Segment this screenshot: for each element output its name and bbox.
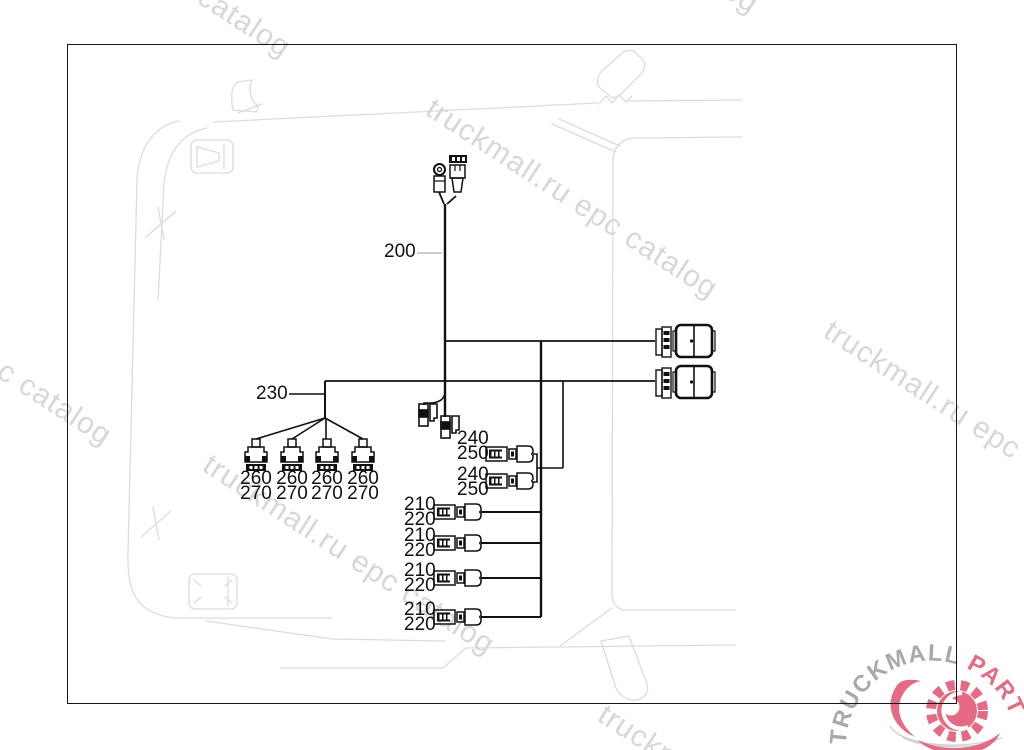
part-number: 200 bbox=[384, 244, 416, 259]
part-callout-200[interactable]: 200 bbox=[384, 244, 416, 259]
lamp-plug-connector-icon bbox=[486, 473, 533, 489]
catalog-page: TRUCKMALL PARTS truckmall.ru epc catalog… bbox=[0, 0, 1024, 750]
part-number: 270 bbox=[310, 486, 344, 501]
part-number: 220 bbox=[404, 543, 436, 558]
part-number: 220 bbox=[404, 617, 436, 632]
wiring-diagram bbox=[0, 0, 1024, 750]
part-callout-210-220[interactable]: 210 220 bbox=[404, 602, 436, 632]
part-number: 270 bbox=[239, 486, 273, 501]
part-callout-260-270[interactable]: 260 270 bbox=[346, 471, 380, 501]
part-callout-260-270[interactable]: 260 270 bbox=[239, 471, 273, 501]
part-number: 220 bbox=[404, 578, 436, 593]
part-number: 270 bbox=[275, 486, 309, 501]
ring-terminal-icon bbox=[434, 164, 445, 192]
part-callout-230[interactable]: 230 bbox=[256, 386, 288, 401]
part-callout-210-220[interactable]: 210 220 bbox=[404, 563, 436, 593]
part-number: 270 bbox=[346, 486, 380, 501]
lamp-plug-connector-icon bbox=[486, 446, 533, 462]
part-callout-210-220[interactable]: 210 220 bbox=[404, 497, 436, 527]
socket-connector-icon bbox=[434, 535, 481, 551]
flag-connector-icon bbox=[419, 404, 437, 426]
part-callout-240-250[interactable]: 240 250 bbox=[457, 431, 489, 461]
wiring-lines bbox=[256, 192, 655, 617]
headlamp-unit-icon bbox=[656, 325, 715, 357]
socket-connector-icon bbox=[434, 570, 481, 586]
socket-connector-icon bbox=[434, 609, 481, 625]
bulb-socket-icon bbox=[281, 439, 303, 471]
part-callout-240-250[interactable]: 240 250 bbox=[457, 467, 489, 497]
part-number: 230 bbox=[256, 386, 288, 401]
part-callout-210-220[interactable]: 210 220 bbox=[404, 528, 436, 558]
part-callout-260-270[interactable]: 260 270 bbox=[275, 471, 309, 501]
headlamp-unit-icon bbox=[656, 366, 715, 398]
bulb-socket-icon bbox=[352, 439, 374, 471]
part-callout-260-270[interactable]: 260 270 bbox=[310, 471, 344, 501]
bulb-socket-icon bbox=[245, 439, 267, 471]
part-number: 250 bbox=[457, 482, 489, 497]
socket-connector-icon bbox=[434, 504, 481, 520]
blade-connector-icon bbox=[449, 155, 467, 192]
bulb-socket-icon bbox=[316, 439, 338, 471]
part-number: 250 bbox=[457, 446, 489, 461]
